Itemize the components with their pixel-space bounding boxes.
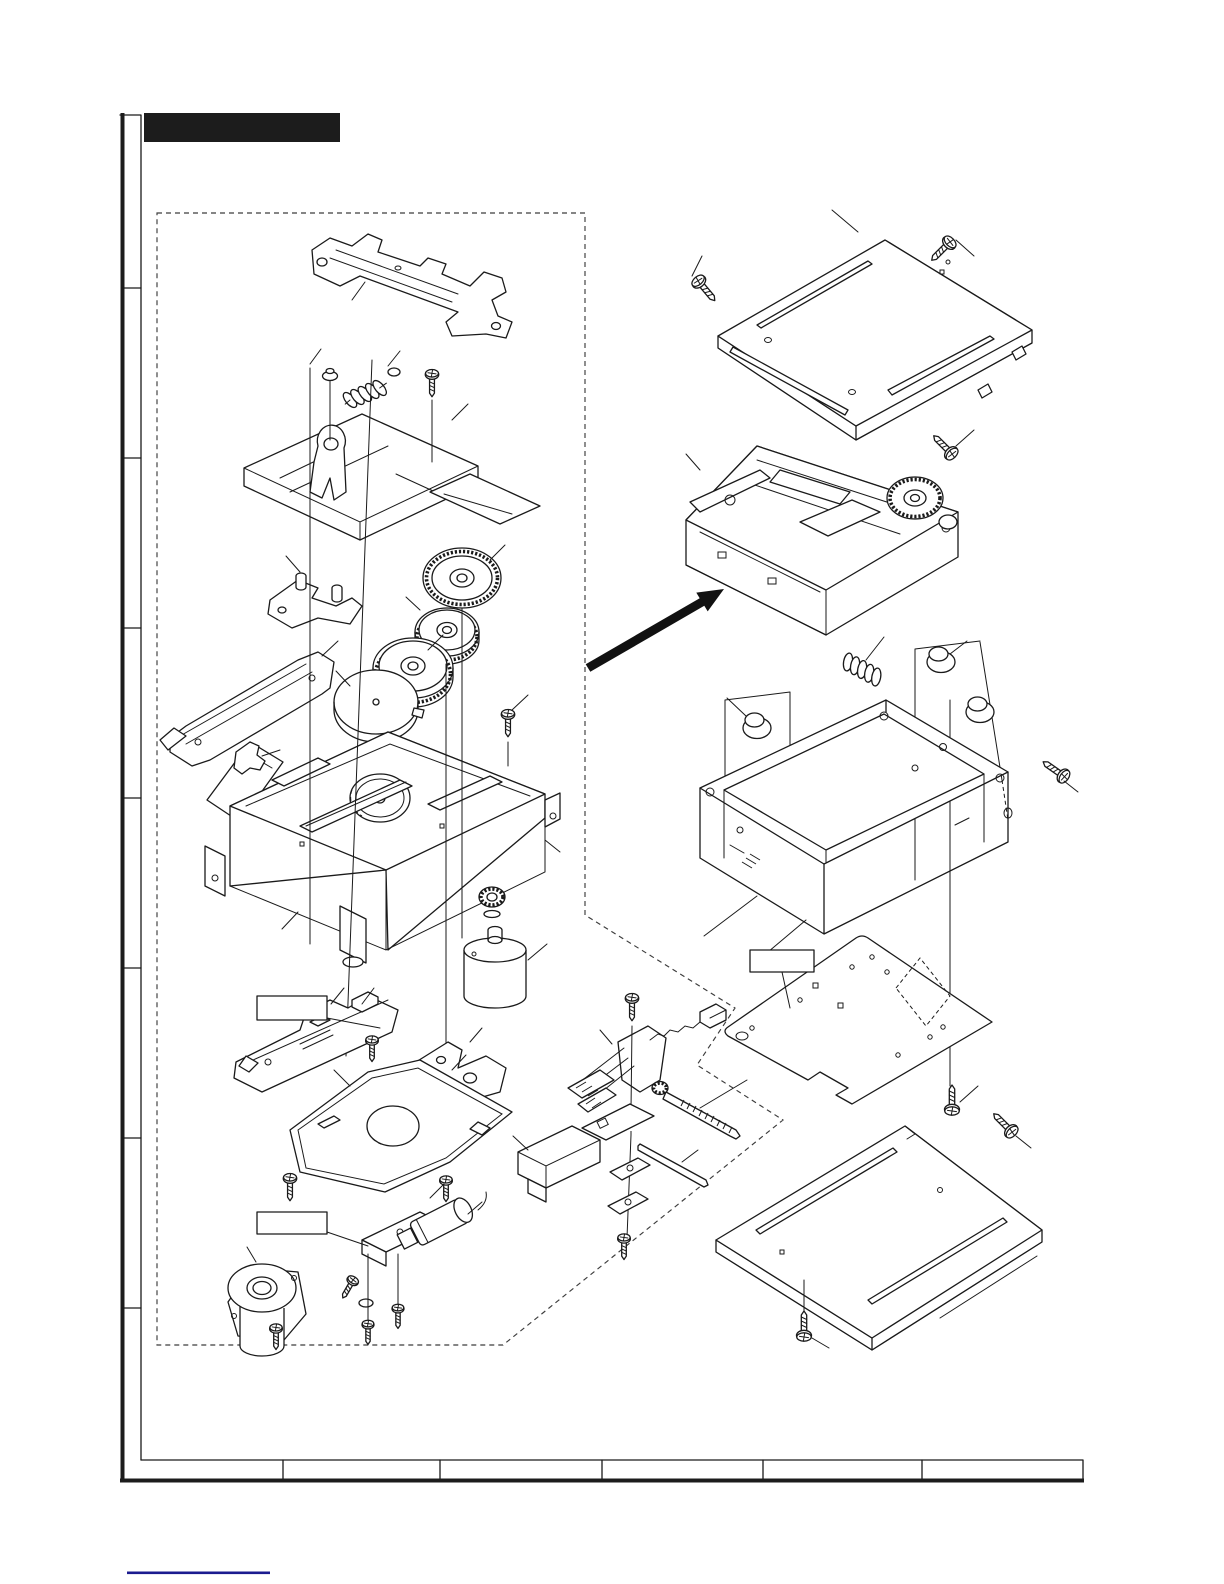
section-title-bar	[144, 113, 340, 142]
manual-page	[0, 0, 1224, 1584]
slide-chassis	[244, 349, 540, 540]
screw	[926, 234, 958, 266]
screw	[440, 1176, 453, 1202]
assembly-arrow	[586, 589, 724, 672]
screw	[425, 370, 439, 397]
gearbox-block	[513, 1104, 654, 1214]
footer-link-underline[interactable]	[127, 1572, 270, 1575]
screw	[392, 1304, 404, 1328]
footer-strip	[120, 1460, 1084, 1483]
damper-grommet	[743, 713, 771, 739]
lead-screw	[652, 1080, 747, 1139]
label-box-2	[257, 1212, 368, 1246]
lift-bracket	[312, 234, 512, 338]
coil-spring	[340, 376, 391, 412]
screw	[501, 710, 515, 737]
screw	[362, 1320, 374, 1344]
screw	[618, 1234, 631, 1260]
screw	[283, 1174, 297, 1201]
screw	[988, 1108, 1020, 1140]
guide-bracket	[268, 556, 362, 628]
flange-motor	[228, 1247, 306, 1356]
mount-cage	[700, 700, 1012, 952]
damper-grommet	[927, 647, 955, 673]
screw	[945, 1085, 960, 1115]
damper-spring	[837, 650, 887, 689]
bottom-cover	[716, 1126, 1042, 1350]
screw	[625, 994, 639, 1021]
exploded-diagram-canvas	[0, 0, 1224, 1584]
screw	[1039, 756, 1072, 786]
spindle-gear	[479, 887, 505, 918]
mechanism-unit	[686, 446, 958, 635]
screw	[690, 273, 721, 306]
margin-tick-marks	[122, 288, 141, 1308]
top-cover	[718, 210, 1032, 440]
screw	[928, 430, 960, 462]
screw	[366, 1036, 379, 1062]
spindle-motor	[464, 927, 547, 1009]
screw	[338, 1274, 360, 1301]
solenoid-assembly	[362, 1184, 486, 1266]
screw	[797, 1311, 812, 1341]
